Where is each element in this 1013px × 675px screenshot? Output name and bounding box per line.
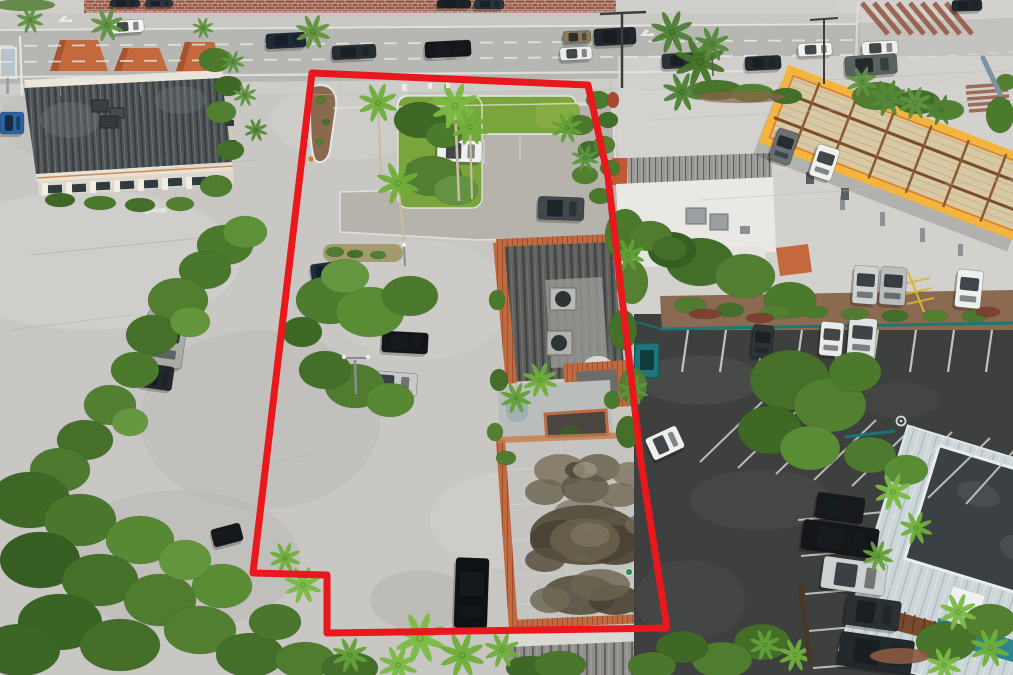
palm-crown <box>396 663 401 668</box>
vehicle <box>796 42 833 60</box>
palm-crown <box>886 96 891 101</box>
palm-crown <box>939 108 943 112</box>
vehicle-glass <box>460 1 465 6</box>
palm-crown <box>876 554 880 558</box>
vehicle-glass <box>958 2 968 10</box>
palm-crown <box>244 94 247 97</box>
palm-crown <box>459 652 465 658</box>
vehicle-glass <box>855 600 877 624</box>
tree-canopy <box>653 237 687 261</box>
tree-canopy <box>598 112 618 128</box>
palm-crown <box>956 610 961 615</box>
tree-canopy <box>841 308 869 320</box>
tree-canopy <box>0 0 55 11</box>
vehicle-glass <box>960 277 980 292</box>
lamp-head <box>366 355 370 359</box>
vehicle-glass <box>880 57 889 70</box>
palm-crown <box>500 648 504 652</box>
vehicle-glass <box>341 47 356 58</box>
vehicle-glass <box>130 1 135 5</box>
tree-canopy <box>84 196 116 210</box>
small-tile-roof <box>776 244 812 276</box>
vehicle-glass <box>460 572 485 597</box>
vehicle-glass <box>362 47 369 56</box>
vehicle-glass <box>857 291 873 298</box>
vehicle-glass <box>869 43 882 54</box>
vehicle-glass <box>456 43 464 54</box>
palm-crown <box>376 101 381 106</box>
vehicle-glass <box>116 1 126 6</box>
vehicle <box>536 196 585 224</box>
aerial-photo-canvas <box>0 0 1013 675</box>
traffic-cone <box>309 157 314 162</box>
vehicle-glass <box>769 58 775 67</box>
tree-canopy <box>882 310 908 322</box>
vehicle-glass <box>391 334 407 350</box>
palm-crown <box>793 653 797 657</box>
vehicle <box>472 0 504 12</box>
palm-crown <box>942 663 946 667</box>
palm-crown <box>538 378 542 382</box>
palm-crown <box>202 27 205 30</box>
roof-wear <box>40 102 100 138</box>
palm-crown <box>914 526 918 530</box>
vehicle-glass <box>547 200 563 217</box>
palm-crown <box>891 490 896 495</box>
tree-canopy <box>316 96 326 104</box>
lamp-head <box>342 355 346 359</box>
tree-canopy <box>382 276 438 316</box>
vehicle-glass <box>480 1 490 7</box>
tree-canopy <box>746 313 774 323</box>
palm-crown <box>680 90 685 95</box>
vehicle <box>379 331 428 357</box>
tree-canopy <box>534 651 586 675</box>
handicap-stall-dot <box>900 420 903 423</box>
vehicle-glass <box>602 30 617 43</box>
tree-canopy <box>170 307 210 337</box>
parking-lamp-pole <box>355 360 356 394</box>
tree-canopy <box>166 197 194 211</box>
tree-canopy <box>370 251 386 259</box>
vehicle <box>558 46 593 64</box>
tree-canopy <box>45 193 75 207</box>
vehicle <box>264 32 307 52</box>
monument-sign <box>0 48 16 78</box>
tree-canopy <box>829 352 881 392</box>
vehicle-glass <box>805 45 817 55</box>
vehicle <box>0 112 24 137</box>
tree-canopy <box>159 540 211 580</box>
palm-crown <box>669 29 674 34</box>
vehicle-glass <box>434 43 450 55</box>
vehicle <box>143 0 173 10</box>
vehicle-glass <box>856 273 875 287</box>
palm-crown <box>468 125 473 130</box>
vehicle-glass <box>752 58 765 69</box>
vehicle-glass <box>816 525 845 550</box>
palm-crown <box>301 583 306 588</box>
vehicle-glass <box>833 562 858 588</box>
palm-crown <box>860 80 864 84</box>
vehicle-glass <box>972 2 977 9</box>
vehicle <box>850 265 880 308</box>
palm-crown <box>283 556 287 560</box>
vehicle-glass <box>852 325 873 340</box>
palm-crown <box>514 396 518 400</box>
tree-canopy <box>689 309 721 319</box>
tree-canopy <box>216 140 244 160</box>
vehicle <box>330 44 377 63</box>
palm-crown <box>395 180 400 185</box>
tree-canopy <box>780 426 840 470</box>
tree-canopy <box>249 604 301 640</box>
vehicle-glass <box>566 49 577 59</box>
tree-canopy <box>802 306 828 318</box>
tree-canopy <box>986 97 1013 133</box>
vehicle <box>592 27 637 49</box>
vehicle <box>952 269 984 313</box>
palm-crown <box>697 59 703 65</box>
vehicle <box>435 0 471 11</box>
tree-canopy <box>347 250 363 258</box>
palm-crown <box>565 126 569 130</box>
vehicle-glass <box>755 331 771 343</box>
vehicle <box>877 266 908 309</box>
vehicle-glass <box>823 328 841 341</box>
sign-post <box>712 56 713 76</box>
vehicle <box>108 0 140 10</box>
tree-canopy <box>282 317 322 347</box>
tree-canopy <box>322 119 330 125</box>
vehicle-glass <box>151 1 161 6</box>
tree-canopy <box>695 91 785 103</box>
tree-canopy <box>316 139 324 145</box>
tree-canopy <box>922 310 948 322</box>
vehicle-glass <box>460 605 481 617</box>
palm-crown <box>452 103 458 109</box>
tree-canopy <box>870 648 930 664</box>
roof-wear <box>154 86 206 114</box>
palm-crown <box>348 653 352 657</box>
vehicle-glass <box>568 33 578 42</box>
palm-crown <box>232 61 235 64</box>
tree-canopy <box>223 216 267 248</box>
vehicle-glass <box>274 35 288 46</box>
vehicle-glass <box>5 115 13 131</box>
vehicle-glass <box>886 43 892 52</box>
vehicle <box>743 55 782 74</box>
palm-crown <box>913 101 917 105</box>
tree-canopy <box>715 254 775 298</box>
fuel-pump <box>841 188 849 200</box>
tree-canopy <box>125 198 155 212</box>
vehicle-glass <box>824 497 843 518</box>
tree-canopy <box>80 619 160 671</box>
parking-sign <box>428 83 432 89</box>
tree-canopy <box>496 451 516 465</box>
tree-canopy <box>326 247 344 257</box>
palm-crown <box>583 156 586 159</box>
tree-canopy <box>487 423 503 441</box>
vehicle-glass <box>884 274 904 288</box>
vehicle-glass <box>622 30 629 41</box>
vehicle <box>423 40 472 61</box>
parking-sign <box>446 82 450 88</box>
vehicle-glass <box>133 22 139 31</box>
tree-canopy <box>112 408 148 436</box>
palm-crown <box>988 646 993 651</box>
vehicle-glass <box>16 116 20 130</box>
tree-canopy <box>490 369 508 391</box>
vehicle-glass <box>582 33 587 41</box>
aerial-photo <box>0 0 1013 675</box>
dumpster <box>640 350 654 370</box>
vehicle-glass <box>164 1 168 5</box>
tree-canopy <box>976 307 1000 317</box>
palm-crown <box>255 129 258 132</box>
vehicle-glass <box>884 292 901 299</box>
vehicle-glass <box>444 1 456 7</box>
tree-canopy <box>604 391 620 409</box>
sign-pole <box>6 78 9 94</box>
tree-canopy <box>321 259 369 293</box>
parking-sign <box>402 84 407 91</box>
vehicle <box>561 30 592 47</box>
vehicle-glass <box>569 201 577 216</box>
tree-canopy <box>607 92 619 108</box>
vehicle <box>452 557 490 631</box>
palm-crown <box>105 23 109 27</box>
tree-canopy <box>206 101 236 123</box>
tree-canopy <box>964 604 1013 640</box>
vehicle <box>816 321 844 360</box>
vehicle-glass <box>413 336 421 350</box>
palm-crown <box>28 18 31 21</box>
palm-crown <box>311 30 315 34</box>
roof-vent-green <box>626 569 633 576</box>
palm-crown <box>626 253 630 257</box>
tree-canopy <box>111 352 159 388</box>
lamp-head <box>402 243 406 247</box>
vehicle-glass <box>582 49 588 58</box>
vehicle-glass <box>494 2 499 8</box>
tree-canopy <box>884 455 928 485</box>
tree-canopy <box>572 166 598 184</box>
palm-crown <box>710 42 714 46</box>
parking-lamp-pole <box>404 246 405 266</box>
vehicle <box>950 0 982 15</box>
tree-canopy <box>366 383 414 417</box>
palm-crown <box>763 643 767 647</box>
tree-canopy <box>200 175 232 197</box>
tree-canopy <box>489 290 505 310</box>
palm-crown <box>417 635 423 641</box>
